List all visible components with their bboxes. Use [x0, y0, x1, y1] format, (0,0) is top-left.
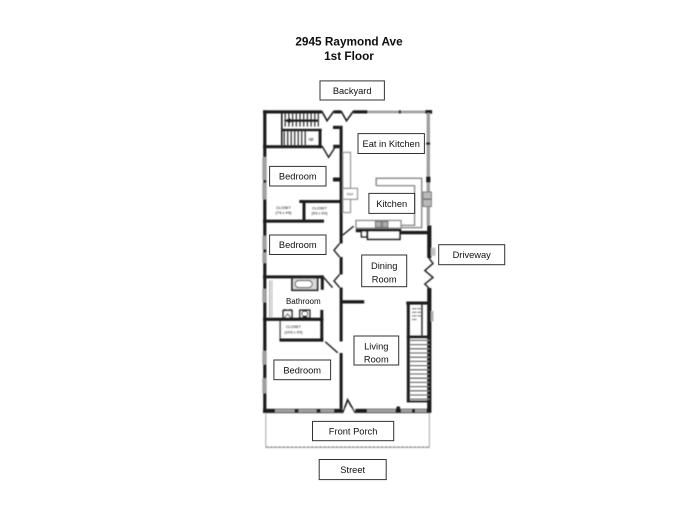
svg-text:Street: Street: [340, 465, 365, 475]
svg-text:CLOSET: CLOSET: [286, 325, 302, 329]
svg-text:up: up: [309, 137, 315, 142]
svg-text:Dining: Dining: [371, 261, 397, 271]
svg-text:Bedroom: Bedroom: [283, 365, 321, 375]
svg-text:Kitchen: Kitchen: [376, 199, 407, 209]
svg-text:1st Floor: 1st Floor: [324, 49, 374, 63]
svg-text:2945 Raymond Ave: 2945 Raymond Ave: [295, 35, 403, 49]
svg-text:CLOSET: CLOSET: [276, 206, 292, 210]
svg-text:Front Porch: Front Porch: [329, 427, 378, 437]
svg-text:Eat in Kitchen: Eat in Kitchen: [363, 139, 420, 149]
svg-text:Backyard: Backyard: [333, 86, 372, 96]
svg-text:(10'6 x 3'0): (10'6 x 3'0): [284, 331, 302, 335]
svg-text:Room: Room: [372, 275, 397, 285]
svg-text:Driveway: Driveway: [453, 250, 492, 260]
svg-text:Living: Living: [364, 342, 388, 352]
svg-text:CLOSET: CLOSET: [312, 207, 328, 211]
svg-text:(7'6 x 4'6): (7'6 x 4'6): [276, 211, 292, 215]
svg-text:Bathroom: Bathroom: [286, 297, 321, 306]
svg-text:(5'6 x 5'0): (5'6 x 5'0): [312, 212, 328, 216]
svg-text:Room: Room: [364, 355, 389, 365]
svg-text:Bedroom: Bedroom: [279, 172, 317, 182]
svg-text:REF: REF: [347, 193, 354, 197]
svg-text:Bedroom: Bedroom: [279, 240, 317, 250]
